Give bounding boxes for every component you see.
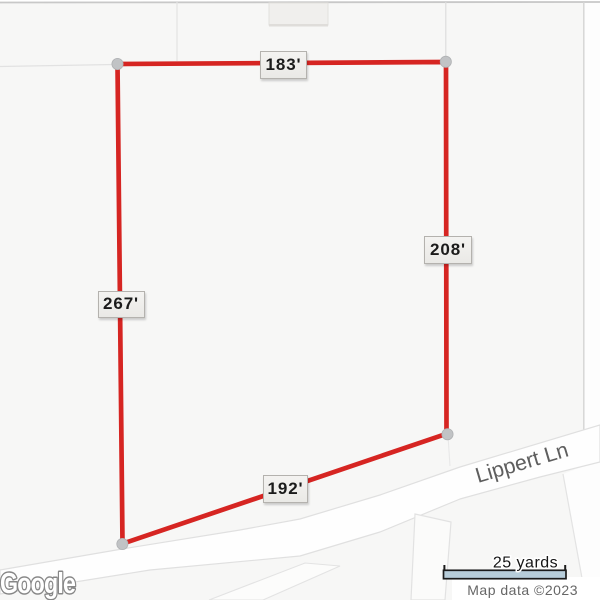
svg-text:Google: Google: [0, 566, 75, 599]
svg-text:25 yards: 25 yards: [493, 554, 558, 571]
svg-text:Map data ©2023: Map data ©2023: [467, 582, 578, 598]
